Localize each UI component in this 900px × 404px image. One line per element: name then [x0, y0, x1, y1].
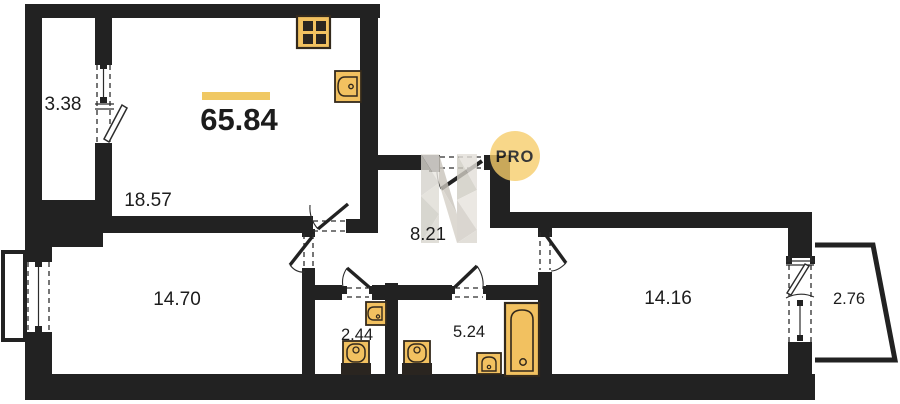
total-area-label: 65.84 [200, 102, 278, 137]
outside-ledge [3, 252, 25, 340]
wall-hall-bottom-mid [372, 285, 452, 300]
door-hall-room-right [540, 232, 566, 271]
wc-toilet-icon [341, 341, 371, 375]
window-left [28, 261, 49, 332]
door-bathroom [455, 266, 483, 297]
wall-kitchen-bottom [95, 216, 313, 233]
balcony-door-window [95, 63, 127, 143]
door-leaf [455, 266, 477, 287]
watermark-label: PRO [496, 148, 535, 166]
stove-icon [297, 16, 330, 48]
bathroom-sink-icon [477, 353, 501, 374]
wall-kitchen-right [360, 4, 378, 233]
door-leaf [347, 268, 369, 287]
floorplan-drawing: PRO 3.38 18.57 65.84 8.21 14.70 2.44 5.2… [0, 0, 900, 404]
bathroom-toilet-icon [402, 341, 432, 375]
door-leaf [290, 237, 312, 265]
area-label-wc: 2.44 [341, 326, 373, 344]
wall-balcony-left [25, 4, 42, 214]
wall-balcony-divider-upper [95, 18, 112, 65]
wall-right-lower [788, 342, 812, 376]
kitchen-sink-icon [335, 71, 361, 102]
area-label-room-left: 14.70 [153, 289, 201, 310]
area-label-balcony-left: 3.38 [45, 94, 82, 115]
door-leaf [318, 204, 348, 229]
door-jamb-2 [369, 286, 376, 294]
area-label-balcony-right: 2.76 [833, 290, 865, 308]
balcony-right-door-window [786, 256, 814, 342]
area-label-hallway: 8.21 [410, 223, 446, 244]
door-leaf [787, 264, 809, 295]
accent-bar [202, 92, 270, 100]
wall-hinge-seg [346, 219, 362, 233]
wall-left-seg1 [25, 247, 52, 262]
wc-sink-icon [366, 302, 386, 325]
wall-balcony-bottom [25, 200, 112, 216]
door-jamb-1 [340, 286, 347, 294]
wall-bottom [25, 374, 815, 400]
bathtub-icon [505, 303, 539, 376]
door-hall-room-left [290, 234, 313, 272]
wall-left-seg2 [25, 332, 52, 376]
door-leaf [545, 234, 566, 263]
area-label-room-right: 14.16 [644, 288, 692, 309]
wall-right-upper [788, 228, 812, 258]
area-label-kitchen-living: 18.57 [124, 190, 172, 211]
door-leaf [104, 105, 127, 142]
door-kitchen-hall [310, 204, 348, 231]
wall-room-right-top [505, 212, 812, 228]
floorplan: PRO 3.38 18.57 65.84 8.21 14.70 2.44 5.2… [0, 0, 900, 404]
door-jamb-3 [448, 286, 455, 294]
wall-junction-left [25, 216, 103, 247]
wall-hall-bottom-left [302, 285, 342, 300]
wall-room-wc-divider [302, 268, 315, 374]
area-label-bathroom: 5.24 [453, 323, 485, 341]
door-jamb-4 [483, 286, 490, 294]
